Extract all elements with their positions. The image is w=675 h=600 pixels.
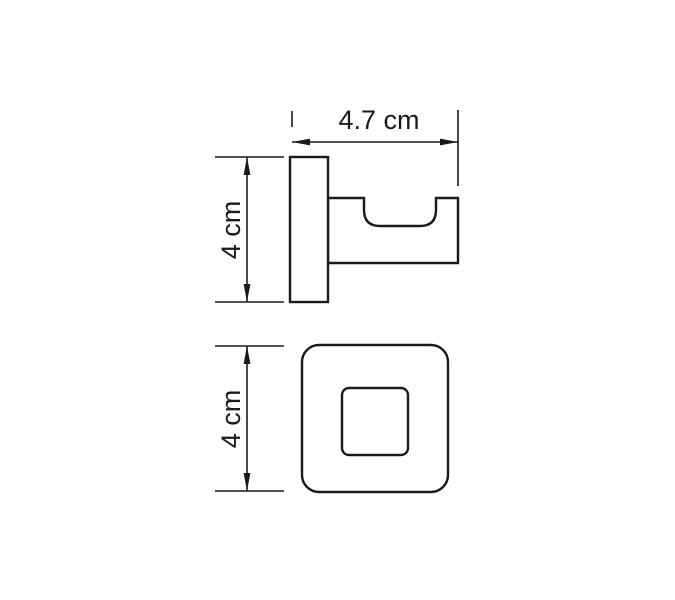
height-dimension-front: 4 cm (215, 346, 284, 491)
wall-plate-profile (290, 157, 328, 302)
arrowhead-left (292, 139, 310, 146)
arrowhead-right (440, 139, 458, 146)
depth-dimension-label: 4.7 cm (338, 105, 419, 135)
arrowhead-down (244, 284, 251, 302)
front-view: 4 cm (215, 345, 448, 492)
height-dimension-label-front: 4 cm (216, 390, 246, 449)
height-dimension-side: 4 cm (215, 157, 284, 302)
arrowhead-up (244, 346, 251, 364)
hook-arm-profile (328, 198, 458, 263)
drawing-canvas: 4.7 cm 4 cm (0, 0, 675, 600)
hook-base-outline (342, 388, 408, 455)
arrowhead-down (244, 473, 251, 491)
technical-drawing-svg: 4.7 cm 4 cm (0, 0, 675, 600)
side-view: 4.7 cm 4 cm (215, 105, 458, 302)
height-dimension-label-side: 4 cm (216, 201, 246, 260)
arrowhead-up (244, 157, 251, 175)
